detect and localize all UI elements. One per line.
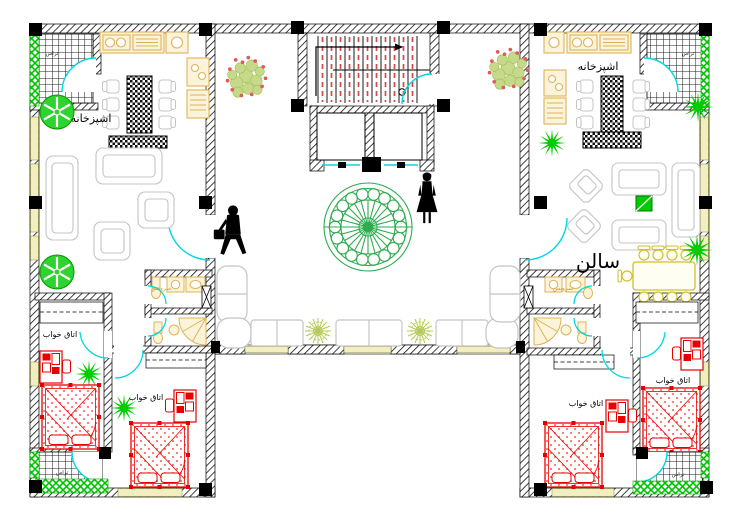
salon-label: سالن xyxy=(576,249,620,273)
tree-icon xyxy=(40,95,74,129)
floor-plan-canvas: تراس اشپزخانه xyxy=(0,0,734,518)
chair xyxy=(103,80,120,93)
chair xyxy=(633,80,650,93)
window xyxy=(344,347,391,353)
column xyxy=(291,99,304,112)
chair xyxy=(652,246,664,260)
wc-left-label: سرویس xyxy=(151,285,172,292)
toilet xyxy=(584,288,593,299)
courtyard-rosette-ornament xyxy=(324,183,412,271)
chair xyxy=(159,80,176,93)
lobby-plant-icon xyxy=(407,318,433,344)
column xyxy=(516,341,525,353)
column xyxy=(199,483,212,496)
column xyxy=(699,23,712,36)
chair xyxy=(638,246,650,260)
column xyxy=(534,196,547,209)
column xyxy=(534,23,547,36)
bed xyxy=(40,383,101,451)
hedge xyxy=(36,479,108,493)
tree-icon xyxy=(40,255,74,289)
chair xyxy=(577,80,594,93)
column xyxy=(437,99,450,112)
column xyxy=(199,23,212,36)
basin xyxy=(561,325,571,335)
closet xyxy=(636,302,698,323)
column xyxy=(636,447,648,459)
column xyxy=(199,196,212,209)
bedroom-left-1-label: اتاق خواب xyxy=(43,330,77,339)
fridge xyxy=(187,58,209,86)
window xyxy=(31,117,39,160)
column xyxy=(99,447,111,459)
window xyxy=(118,489,182,497)
dining-table-yellow xyxy=(633,262,695,290)
bed xyxy=(641,386,702,454)
elevator-shaft xyxy=(317,113,365,160)
terrace-top-left: تراس xyxy=(30,34,96,106)
column xyxy=(29,23,42,36)
column xyxy=(362,157,381,172)
dining-bench xyxy=(583,132,641,148)
oven xyxy=(544,98,566,124)
terrace-bottom-left: تراس xyxy=(29,452,108,493)
window xyxy=(31,236,39,260)
terrace-label: تراس xyxy=(56,470,69,476)
kitchen-left-label: اشپزخانه xyxy=(71,112,112,125)
wc-right-label: سرویس xyxy=(553,285,574,292)
column xyxy=(437,21,450,34)
hedge xyxy=(701,452,709,478)
fridge xyxy=(544,70,566,96)
bedroom-right-2-label: اتاق خواب xyxy=(569,399,603,408)
basin xyxy=(169,325,179,335)
chair xyxy=(577,98,594,111)
chair xyxy=(618,270,632,282)
chair xyxy=(159,98,176,111)
closet xyxy=(40,302,103,323)
column xyxy=(211,341,220,353)
chair xyxy=(159,116,176,129)
column xyxy=(699,196,712,209)
oven xyxy=(187,90,209,118)
closet xyxy=(146,353,206,368)
bed xyxy=(543,421,604,489)
bed xyxy=(129,421,190,489)
hedge xyxy=(30,452,39,478)
hedge xyxy=(633,481,705,494)
dining-table xyxy=(601,76,623,132)
terrace-top-right: تراس xyxy=(644,34,709,106)
bedroom-right-1-label: اتاق خواب xyxy=(656,376,690,385)
column xyxy=(700,481,713,494)
terrace-label: تراس xyxy=(672,472,685,478)
dining-table xyxy=(127,76,152,133)
chair xyxy=(633,116,650,129)
elevator-shaft xyxy=(374,113,422,160)
terrace-label: تراس xyxy=(46,51,59,57)
chair xyxy=(666,246,678,260)
terrace-label: تراس xyxy=(682,51,695,57)
window xyxy=(552,489,614,497)
column xyxy=(29,196,42,209)
window xyxy=(701,117,709,160)
hedge xyxy=(30,34,39,106)
bedroom-left-2-label: اتاق خواب xyxy=(129,393,163,402)
lobby-plant-icon xyxy=(305,318,331,344)
column xyxy=(291,21,304,34)
chair xyxy=(577,116,594,129)
column xyxy=(29,480,42,493)
column xyxy=(534,483,547,496)
window xyxy=(31,362,39,386)
chair xyxy=(633,98,650,111)
floor-plan-drawing: تراس اشپزخانه xyxy=(0,0,734,518)
window xyxy=(245,347,288,353)
kitchen-right-label: اشپزخانه xyxy=(578,60,619,73)
chair xyxy=(103,98,120,111)
dining-bench xyxy=(109,136,167,148)
